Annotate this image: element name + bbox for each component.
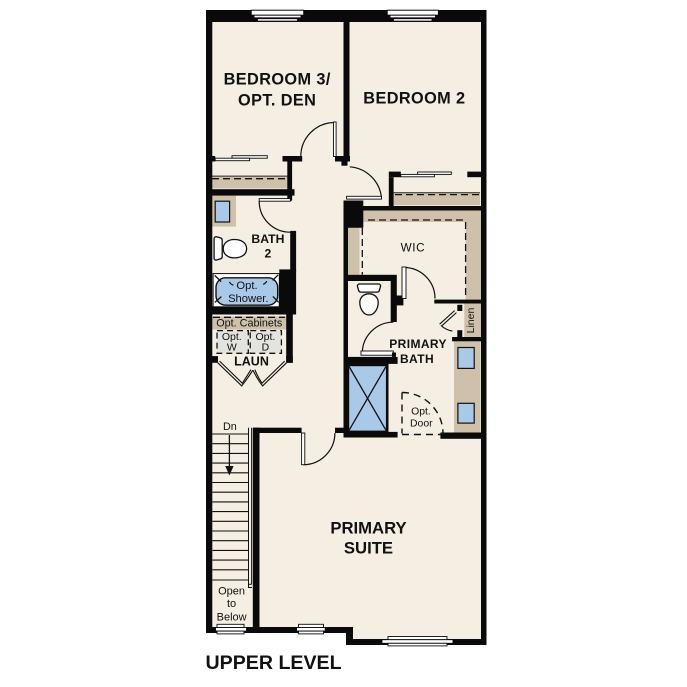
svg-text:Dn: Dn: [223, 421, 237, 433]
svg-text:BATH: BATH: [400, 352, 434, 366]
svg-text:Opt.: Opt.: [236, 280, 257, 292]
svg-text:to: to: [227, 598, 236, 610]
svg-text:2: 2: [265, 246, 272, 260]
svg-text:Shower.: Shower.: [228, 293, 268, 305]
svg-text:UPPER LEVEL: UPPER LEVEL: [206, 652, 342, 674]
svg-text:Opt.: Opt.: [411, 406, 431, 417]
svg-text:LAUN: LAUN: [234, 355, 269, 369]
svg-text:OPT. DEN: OPT. DEN: [238, 92, 316, 110]
svg-text:BATH: BATH: [251, 232, 284, 246]
svg-text:Door: Door: [410, 418, 433, 429]
svg-text:PRIMARY: PRIMARY: [389, 337, 447, 351]
svg-text:Linen: Linen: [465, 308, 477, 334]
svg-text:Opt. Cabinets: Opt. Cabinets: [216, 318, 283, 330]
svg-text:SUITE: SUITE: [344, 538, 393, 557]
svg-text:PRIMARY: PRIMARY: [330, 519, 406, 538]
svg-text:WIC: WIC: [401, 242, 426, 255]
svg-text:BEDROOM 3/: BEDROOM 3/: [224, 71, 331, 89]
svg-text:Open: Open: [218, 585, 245, 597]
svg-text:BEDROOM 2: BEDROOM 2: [363, 89, 465, 107]
svg-text:W: W: [227, 341, 237, 353]
svg-text:Below: Below: [217, 612, 247, 624]
svg-text:D: D: [262, 341, 270, 353]
